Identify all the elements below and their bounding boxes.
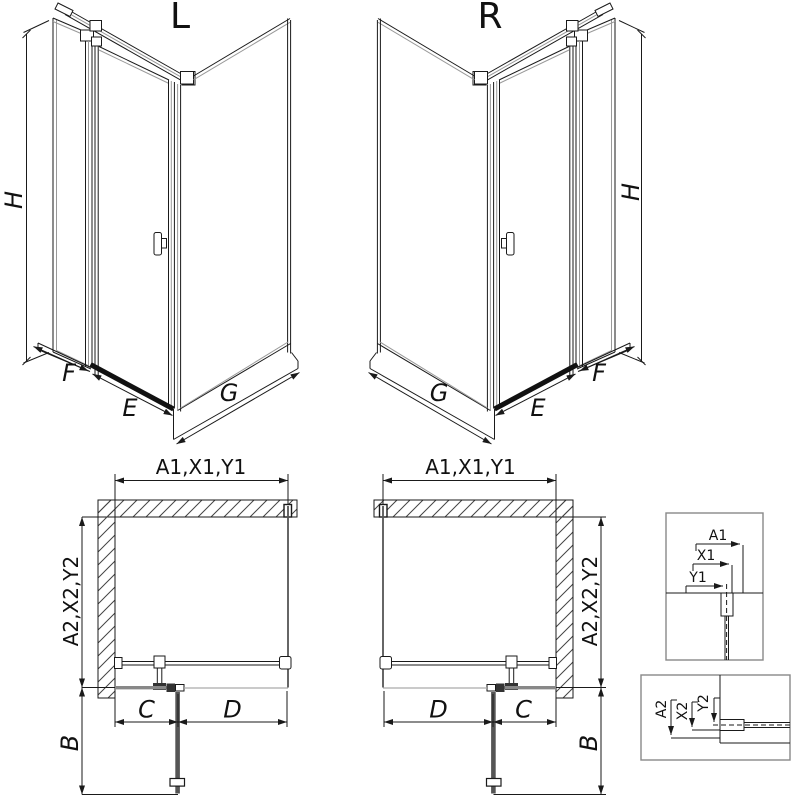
- variant-title-left: L: [170, 0, 190, 37]
- iso-view-left: L H F E G: [0, 0, 300, 444]
- iso-view-right: R H F E G: [369, 0, 646, 444]
- dim-label-side-left: F: [62, 359, 77, 387]
- variant-title-right: R: [477, 0, 502, 37]
- detail-label-a2: A2: [654, 700, 670, 718]
- dim-label-b-left-plan: B: [56, 735, 84, 751]
- dim-label-d-left-plan: D: [223, 696, 241, 724]
- dim-label-height-left: H: [0, 191, 28, 209]
- plan-view-left: A1,X1,Y1 A2,X2,Y2 C D B: [56, 455, 297, 795]
- plan-view-right: A1,X1,Y1 A2,X2,Y2 D C B: [374, 455, 606, 795]
- dim-label-height-right: H: [617, 183, 645, 201]
- dim-label-depth-right-plan: A2,X2,Y2: [578, 556, 602, 647]
- dim-label-c-left-plan: C: [138, 696, 155, 724]
- wall-side-right-plan: [556, 500, 573, 698]
- detail-label-y2: Y2: [696, 694, 712, 712]
- dim-label-d-right-plan: D: [429, 696, 447, 724]
- dim-label-door-left: E: [122, 394, 138, 422]
- shower-enclosure-technical-drawing: L H F E G R H F E G A1,X1,Y1 A2,X2,Y2: [0, 0, 800, 800]
- dim-label-side-right: F: [592, 359, 607, 387]
- drawing-canvas: L H F E G R H F E G A1,X1,Y1 A2,X2,Y2: [0, 0, 800, 800]
- dim-label-b-right-plan: B: [575, 735, 603, 751]
- detail-label-x1: X1: [697, 548, 716, 564]
- wall-top-left-plan: [98, 500, 297, 517]
- dim-label-width-top-left-plan: A1,X1,Y1: [156, 455, 247, 479]
- detail-label-x2: X2: [675, 702, 691, 721]
- dim-label-panel-right: G: [430, 379, 449, 407]
- dim-label-width-top-right-plan: A1,X1,Y1: [425, 455, 516, 479]
- detail-box-wall-profile-bottom: A2 X2 Y2: [641, 675, 790, 760]
- detail-box-wall-profile-top: A1 X1 Y1: [666, 513, 763, 660]
- wall-side-left-plan: [98, 500, 115, 698]
- dim-label-depth-left-plan: A2,X2,Y2: [59, 556, 83, 647]
- dim-label-panel-left: G: [220, 379, 239, 407]
- wall-top-right-plan: [374, 500, 573, 517]
- detail-label-a1: A1: [709, 528, 727, 544]
- dim-label-door-right: E: [530, 394, 546, 422]
- dim-label-c-right-plan: C: [515, 696, 532, 724]
- detail-label-y1: Y1: [688, 570, 706, 586]
